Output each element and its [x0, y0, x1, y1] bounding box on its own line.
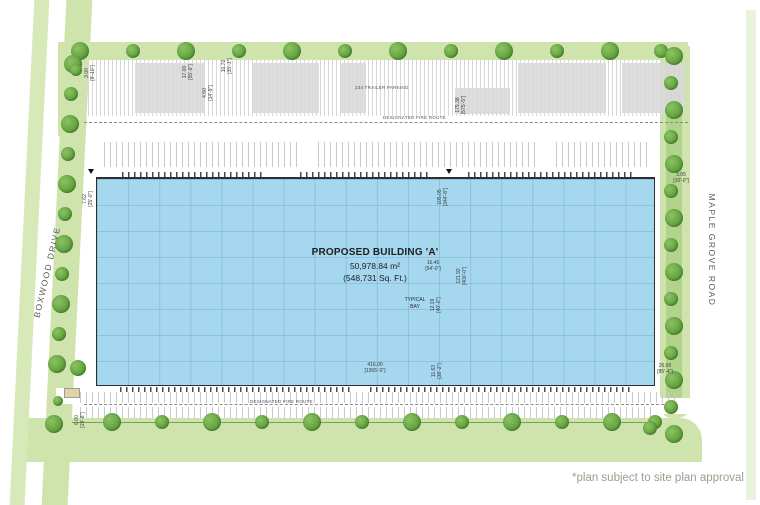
dimension-label: 6.00 [19'-8"]	[74, 403, 86, 437]
tree-icon	[555, 415, 569, 429]
tree-icon	[126, 44, 140, 58]
dimension-label: 175.38 [575'-5"]	[455, 88, 467, 122]
tree-icon	[455, 415, 469, 429]
parked-trailers	[135, 63, 205, 113]
dimension-label: 416.00 [1365'-0"]	[358, 362, 392, 374]
building-area-imperial: (548,731 Sq. Ft.)	[265, 273, 485, 283]
entry-arrow-icon	[88, 169, 94, 174]
dimension-label: 7.62 [25'-0"]	[82, 182, 94, 216]
parking-stalls	[318, 142, 536, 167]
tree-icon	[355, 415, 369, 429]
tree-icon	[664, 292, 678, 306]
tree-icon	[55, 267, 69, 281]
dimension-label: 121.92 [400'-0"]	[456, 259, 468, 293]
trailer-parking-label: 234 TRAILER PARKING	[355, 85, 409, 90]
entry-arrow-icon	[446, 169, 452, 174]
tree-icon	[403, 413, 421, 431]
fire-route-label-top: DESIGNATED FIRE ROUTE	[383, 115, 446, 120]
tree-icon	[665, 425, 683, 443]
tree-icon	[70, 360, 86, 376]
tree-icon	[61, 147, 75, 161]
tree-icon	[503, 413, 521, 431]
tree-icon	[389, 42, 407, 60]
fire-route-label-bottom: DESIGNATED FIRE ROUTE	[250, 399, 313, 404]
dimension-label: 16.46 [54'-0"]	[416, 260, 450, 272]
tree-icon	[444, 44, 458, 58]
tree-icon	[338, 44, 352, 58]
tree-icon	[155, 415, 169, 429]
tree-icon	[48, 355, 66, 373]
tree-icon	[664, 184, 678, 198]
tree-icon	[643, 421, 657, 435]
tree-icon	[665, 101, 683, 119]
tree-icon	[61, 115, 79, 133]
tree-icon	[664, 130, 678, 144]
dimension-label: 10.70 [35'-1"]	[221, 49, 233, 83]
tree-icon	[64, 87, 78, 101]
parking-stalls	[104, 142, 300, 167]
fire-route-line-bottom	[84, 404, 664, 405]
tree-icon	[665, 209, 683, 227]
tree-icon	[203, 413, 221, 431]
tree-icon	[664, 346, 678, 360]
top-verge-strip	[58, 42, 688, 60]
tree-icon	[601, 42, 619, 60]
dimension-label: 26.00 [85'-4"]	[648, 363, 682, 375]
parked-trailers	[518, 63, 606, 113]
building-title: PROPOSED BUILDING 'A'	[265, 247, 485, 258]
tree-icon	[665, 155, 683, 173]
tree-icon	[52, 295, 70, 313]
right-road-shoulder	[746, 10, 756, 500]
tree-icon	[58, 207, 72, 221]
dimension-label: 4.50 [14'-9"]	[202, 76, 214, 110]
tree-icon	[664, 400, 678, 414]
parking-stalls	[556, 142, 652, 167]
tree-icon	[45, 415, 63, 433]
tree-icon	[664, 76, 678, 90]
tree-icon	[303, 413, 321, 431]
tree-icon	[103, 413, 121, 431]
site-plan: 234 TRAILER PARKING DESIGNATED FIRE ROUT…	[0, 0, 760, 505]
tree-icon	[255, 415, 269, 429]
tree-icon	[53, 396, 63, 406]
tree-icon	[665, 317, 683, 335]
proposed-building-a: PROPOSED BUILDING 'A' 50,978.84 m² (548,…	[96, 177, 655, 386]
dimension-label: 11.63 [38'-2"]	[431, 354, 443, 388]
tree-icon	[283, 42, 301, 60]
guard-hut	[64, 388, 80, 398]
tree-icon	[603, 413, 621, 431]
dimension-label: 17.00 [55'-9"]	[182, 55, 194, 89]
fire-route-line-top	[84, 122, 688, 123]
dimension-label: 3.05 [10'-0"]	[664, 172, 698, 184]
tree-icon	[665, 47, 683, 65]
typical-bay-label: TYPICAL BAY	[395, 297, 435, 310]
tree-icon	[550, 44, 564, 58]
tree-icon	[58, 175, 76, 193]
dimension-label: 12.19 [40'-0"]	[430, 288, 442, 322]
approval-footnote: *plan subject to site plan approval	[572, 472, 744, 484]
dimension-label: 105.05 [344'-8"]	[437, 180, 449, 214]
tree-icon	[665, 263, 683, 281]
tree-icon	[232, 44, 246, 58]
building-area-metric: 50,978.84 m²	[265, 261, 485, 271]
dimension-label: 3.00 [9'-10"]	[84, 56, 96, 90]
tree-icon	[70, 64, 82, 76]
parking-stalls	[80, 392, 680, 403]
maple-grove-road-label: MAPLE GROVE ROAD	[707, 194, 717, 307]
tree-icon	[495, 42, 513, 60]
parked-trailers	[253, 63, 319, 113]
road-median-strip	[9, 0, 49, 505]
tree-icon	[664, 238, 678, 252]
tree-icon	[52, 327, 66, 341]
